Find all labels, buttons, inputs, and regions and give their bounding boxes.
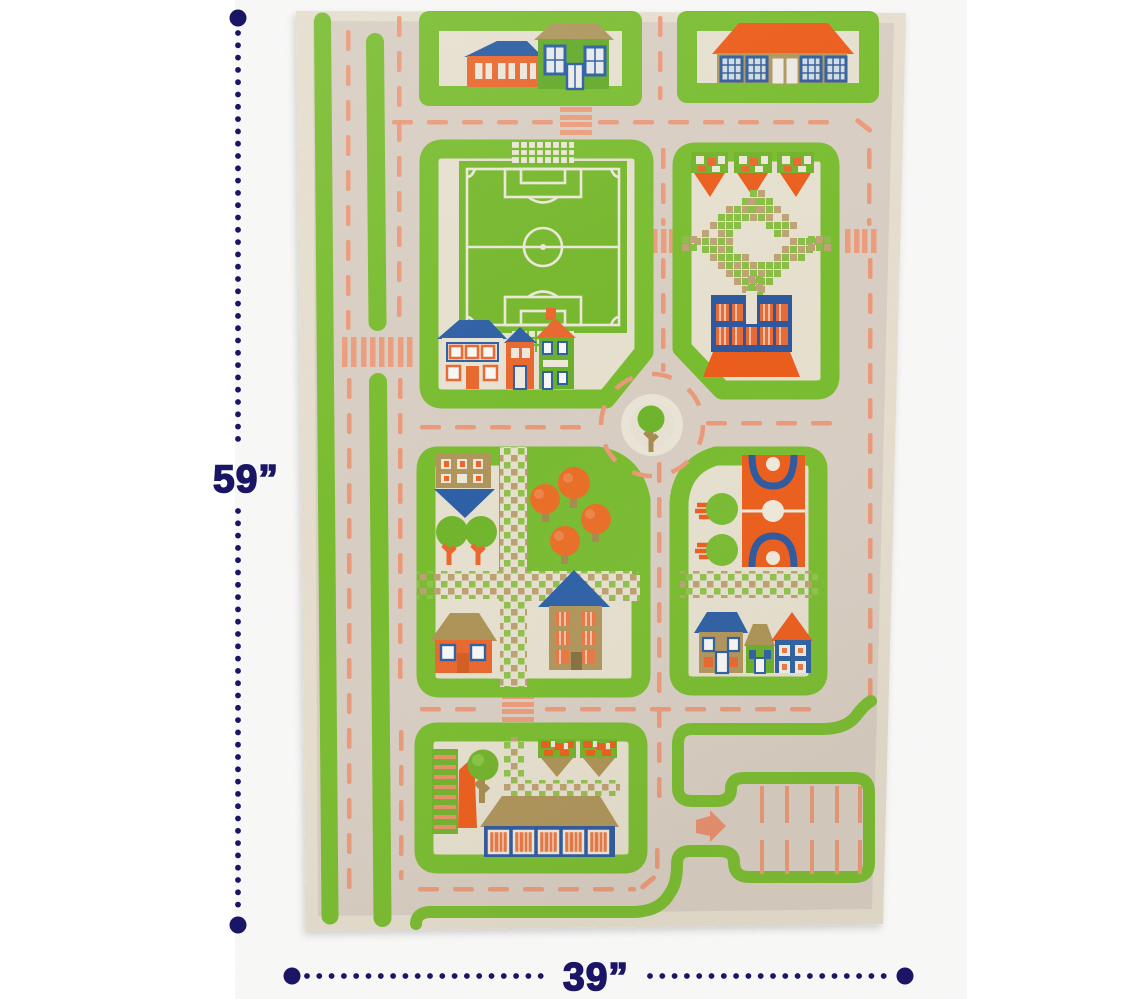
svg-text:59”: 59”	[213, 458, 279, 501]
svg-text:39”: 39”	[563, 956, 629, 999]
